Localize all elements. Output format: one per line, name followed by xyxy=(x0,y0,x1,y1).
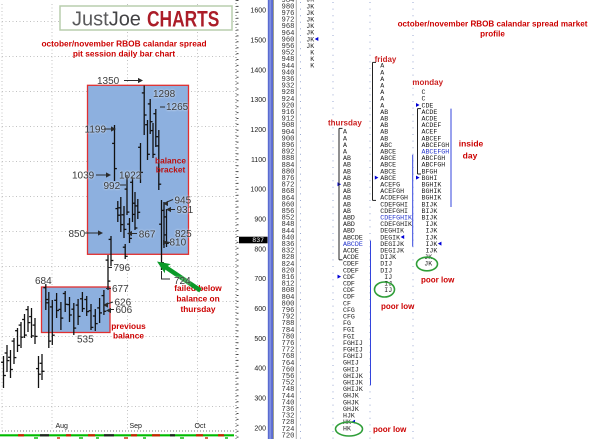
svg-text:poor low: poor low xyxy=(373,425,407,434)
svg-text:810: 810 xyxy=(170,238,187,249)
svg-text:200: 200 xyxy=(254,425,266,432)
svg-text:837: 837 xyxy=(252,237,264,244)
svg-text:monday: monday xyxy=(412,78,443,87)
svg-text:poor low: poor low xyxy=(421,276,455,285)
svg-text:previous: previous xyxy=(111,321,146,331)
svg-text:thursday: thursday xyxy=(180,304,215,314)
svg-text:606: 606 xyxy=(116,305,133,316)
svg-text:pit session daily bar chart: pit session daily bar chart xyxy=(73,49,176,59)
svg-text:300: 300 xyxy=(254,396,266,403)
svg-text:1265: 1265 xyxy=(166,102,189,113)
svg-text:1000: 1000 xyxy=(250,187,266,194)
svg-text:500: 500 xyxy=(254,336,266,343)
svg-text:JustJoe: JustJoe xyxy=(72,9,141,31)
svg-text:1200: 1200 xyxy=(250,127,266,134)
svg-text:profile: profile xyxy=(480,30,505,39)
svg-text:1022: 1022 xyxy=(119,171,142,182)
svg-text:850: 850 xyxy=(69,229,86,240)
svg-text:867: 867 xyxy=(139,230,156,241)
svg-text:JK: JK xyxy=(424,261,432,268)
svg-text:HK: HK xyxy=(343,426,351,433)
svg-text:thursday: thursday xyxy=(328,119,362,128)
svg-text:600: 600 xyxy=(254,306,266,313)
svg-text:day: day xyxy=(463,151,478,161)
svg-text:1100: 1100 xyxy=(251,157,266,164)
svg-text:677: 677 xyxy=(112,284,129,295)
svg-text:992: 992 xyxy=(104,181,121,192)
svg-text:1500: 1500 xyxy=(250,38,266,45)
svg-text:400: 400 xyxy=(254,366,266,373)
svg-text:720: 720 xyxy=(282,432,295,439)
svg-text:1298: 1298 xyxy=(153,89,176,100)
svg-text:1199: 1199 xyxy=(85,125,107,136)
svg-text:october/november RBOB calandar: october/november RBOB calandar spread xyxy=(41,39,206,49)
svg-text:bracket: bracket xyxy=(156,165,186,175)
svg-text:friday: friday xyxy=(375,55,397,64)
svg-text:CHARTS: CHARTS xyxy=(147,8,219,32)
svg-text:796: 796 xyxy=(114,263,131,274)
svg-text:724: 724 xyxy=(174,276,191,287)
svg-text:october/november RBOB calandar: october/november RBOB calandar spread ma… xyxy=(398,20,588,29)
svg-text:poor low: poor low xyxy=(381,302,415,311)
svg-text:684: 684 xyxy=(35,276,52,287)
svg-text:balance: balance xyxy=(113,331,144,341)
svg-text:535: 535 xyxy=(77,335,94,346)
svg-text:Sep: Sep xyxy=(130,423,143,430)
svg-text:700: 700 xyxy=(254,276,266,283)
svg-text:K: K xyxy=(310,63,314,70)
svg-text:1039: 1039 xyxy=(72,171,95,182)
svg-text:balance on: balance on xyxy=(176,294,219,304)
svg-text:800: 800 xyxy=(254,246,266,253)
svg-text:inside: inside xyxy=(459,139,484,149)
svg-text:1600: 1600 xyxy=(250,8,266,15)
svg-text:931: 931 xyxy=(177,205,194,216)
svg-text:Oct: Oct xyxy=(195,423,206,430)
svg-text:1400: 1400 xyxy=(250,67,266,74)
svg-text:900: 900 xyxy=(254,217,266,224)
svg-text:1350: 1350 xyxy=(97,76,120,87)
svg-text:IJ: IJ xyxy=(384,287,392,294)
svg-text:Aug: Aug xyxy=(56,423,69,430)
svg-text:1300: 1300 xyxy=(250,97,266,104)
